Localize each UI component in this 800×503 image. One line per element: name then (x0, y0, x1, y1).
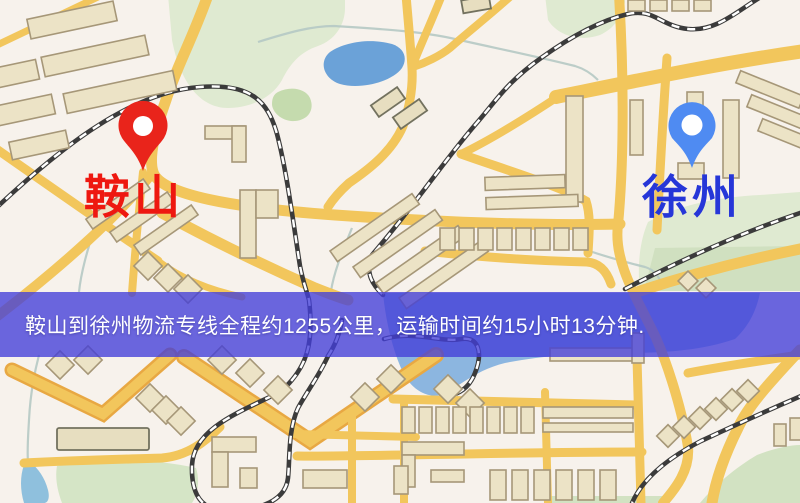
route-info-banner: 鞍山到徐州物流专线全程约1255公里，运输时间约15小时13分钟. (0, 292, 800, 357)
origin-city-label: 鞍山 (84, 174, 184, 220)
route-info-text: 鞍山到徐州物流专线全程约1255公里，运输时间约15小时13分钟. (25, 310, 645, 340)
map-screenshot: 鞍山 徐州 鞍山到徐州物流专线全程约1255公里，运输时间约15小时13分钟. (0, 0, 800, 503)
destination-city-label: 徐州 (642, 174, 742, 220)
map-canvas (0, 0, 800, 503)
